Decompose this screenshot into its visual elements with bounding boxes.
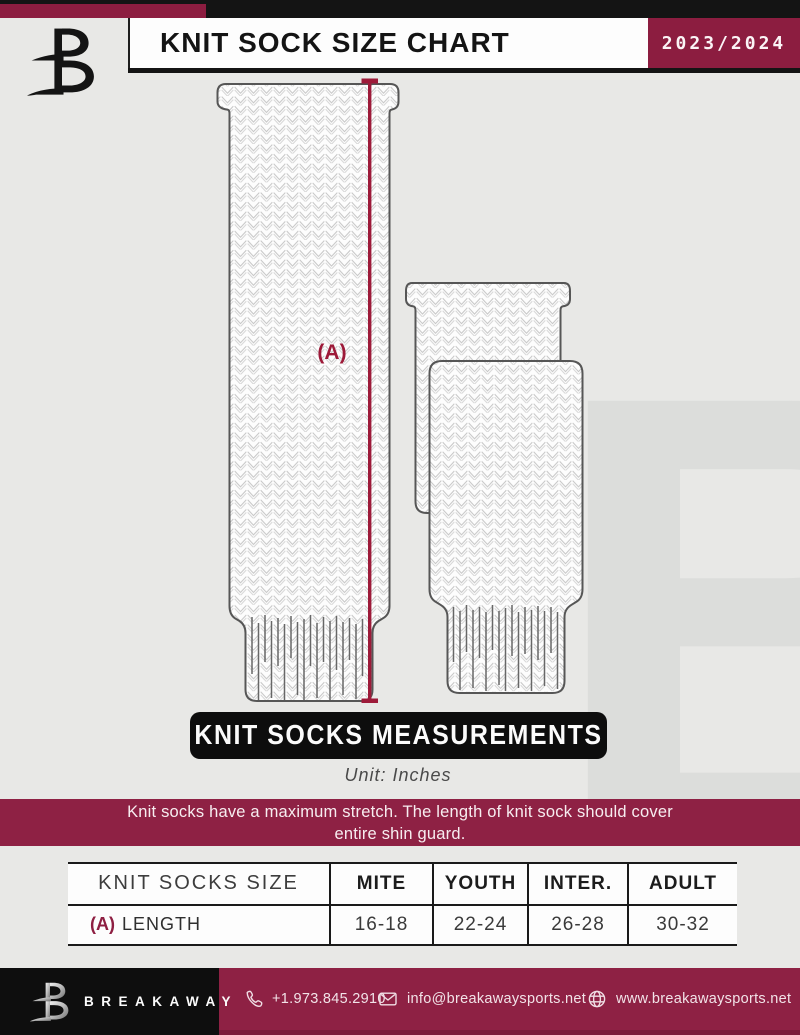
website-url: www.breakawaysports.net <box>616 991 791 1007</box>
column-header-youth: YOUTH <box>432 864 527 906</box>
breakaway-b-logo-icon <box>24 22 100 102</box>
phone-icon <box>242 988 264 1010</box>
footer-brand-name: BREAKAWAY <box>84 968 238 1035</box>
top-maroon-bar <box>0 4 206 19</box>
unit-note: Unit: Inches <box>198 765 598 786</box>
column-header-adult: ADULT <box>627 864 737 906</box>
column-header-inter: INTER. <box>527 864 627 906</box>
breakaway-b-logo-footer-icon <box>28 981 72 1023</box>
page-title: KNIT SOCK SIZE CHART <box>130 27 510 59</box>
length-measure-label: (A) <box>310 341 354 365</box>
phone-link[interactable]: +1.973.845.2910 <box>242 968 386 1030</box>
cell-length-mite: 16-18 <box>329 906 432 945</box>
row-label-length: (A) LENGTH <box>68 906 329 945</box>
envelope-icon <box>377 988 399 1010</box>
season-label: 2023/2024 <box>662 33 787 54</box>
globe-icon <box>586 988 608 1010</box>
cell-length-youth: 22-24 <box>432 906 527 945</box>
email-address: info@breakawaysports.net <box>407 991 586 1007</box>
row-label-text: LENGTH <box>122 914 201 935</box>
cell-length-inter: 26-28 <box>527 906 627 945</box>
stretch-note-line2: entire shin guard. <box>334 823 465 845</box>
phone-number: +1.973.845.2910 <box>272 991 386 1007</box>
stretch-note-line1: Knit socks have a maximum stretch. The l… <box>127 801 673 823</box>
measurements-banner-title: KNIT SOCKS MEASUREMENTS <box>194 719 602 751</box>
column-header-size: KNIT SOCKS SIZE <box>68 864 329 906</box>
footer-bottom-strip <box>219 1030 800 1035</box>
header-underline <box>128 68 800 73</box>
size-table: KNIT SOCKS SIZE MITE YOUTH INTER. ADULT … <box>68 862 737 946</box>
cell-length-adult: 30-32 <box>627 906 737 945</box>
row-label-prefix: (A) <box>90 914 115 935</box>
column-header-mite: MITE <box>329 864 432 906</box>
season-badge: 2023/2024 <box>648 18 800 68</box>
email-link[interactable]: info@breakawaysports.net <box>377 968 586 1030</box>
website-link[interactable]: www.breakawaysports.net <box>586 968 791 1030</box>
footer: BREAKAWAY +1.973.845.2910 info@breakaway… <box>0 968 800 1035</box>
knit-sock-size-chart-poster: B (A) <box>0 0 800 1035</box>
stretch-note-banner: Knit socks have a maximum stretch. The l… <box>0 799 800 846</box>
measurements-banner: KNIT SOCKS MEASUREMENTS <box>190 712 607 759</box>
title-box: KNIT SOCK SIZE CHART <box>128 18 648 68</box>
